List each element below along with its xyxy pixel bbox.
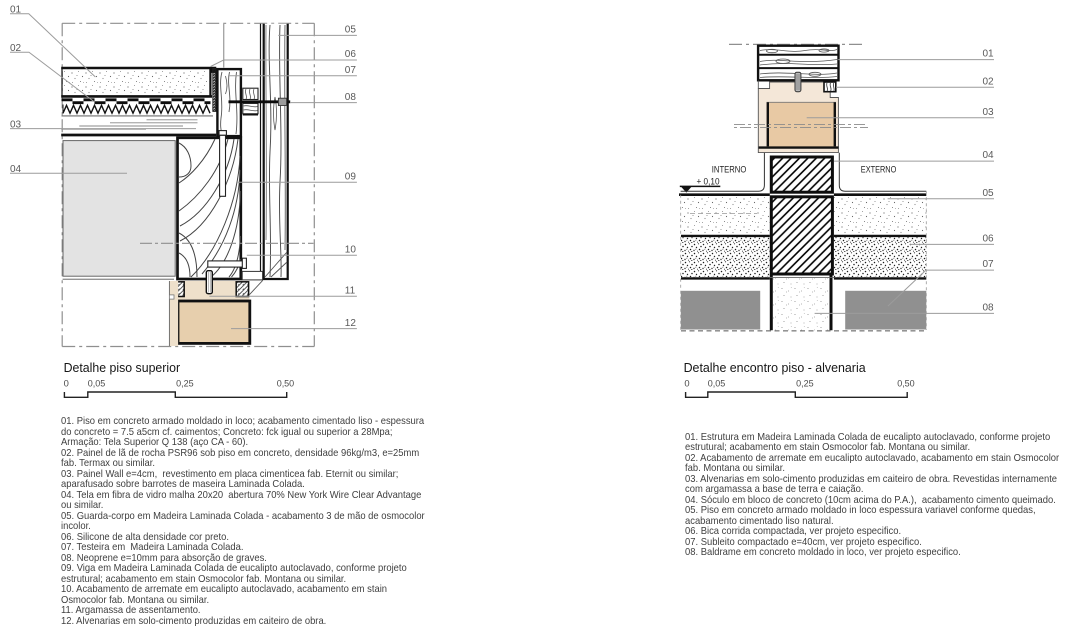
svg-text:05: 05: [345, 25, 357, 36]
svg-text:01: 01: [10, 5, 22, 16]
svg-text:08: 08: [983, 303, 995, 314]
svg-text:0,25: 0,25: [176, 377, 194, 388]
svg-text:07: 07: [345, 65, 357, 76]
svg-text:07: 07: [983, 259, 995, 270]
svg-text:0,25: 0,25: [796, 377, 814, 388]
svg-text:09: 09: [345, 171, 357, 182]
svg-text:+ 0,10: + 0,10: [697, 175, 720, 186]
svg-text:04: 04: [10, 164, 22, 175]
svg-text:10: 10: [345, 244, 357, 255]
svg-text:0,50: 0,50: [897, 377, 915, 388]
svg-text:0: 0: [64, 377, 69, 388]
svg-text:Detalhe encontro piso - alvena: Detalhe encontro piso - alvenaria: [684, 360, 867, 375]
svg-text:Detalhe piso superior: Detalhe piso superior: [64, 360, 181, 375]
svg-text:05: 05: [983, 188, 995, 199]
svg-text:11: 11: [345, 286, 356, 297]
svg-text:03: 03: [10, 119, 22, 130]
svg-text:INTERNO: INTERNO: [712, 165, 747, 176]
svg-text:01: 01: [983, 49, 995, 60]
svg-text:02: 02: [10, 43, 22, 54]
svg-text:04: 04: [983, 150, 995, 161]
svg-text:06: 06: [983, 234, 995, 245]
svg-text:12: 12: [345, 318, 357, 329]
svg-text:0,05: 0,05: [88, 377, 106, 388]
svg-text:EXTERNO: EXTERNO: [861, 165, 897, 176]
svg-text:06: 06: [345, 49, 357, 60]
svg-text:08: 08: [345, 92, 357, 103]
svg-text:02: 02: [983, 76, 995, 87]
svg-text:0,50: 0,50: [277, 377, 295, 388]
svg-text:0,05: 0,05: [708, 377, 726, 388]
svg-text:0: 0: [684, 377, 689, 388]
svg-text:03: 03: [983, 107, 995, 118]
